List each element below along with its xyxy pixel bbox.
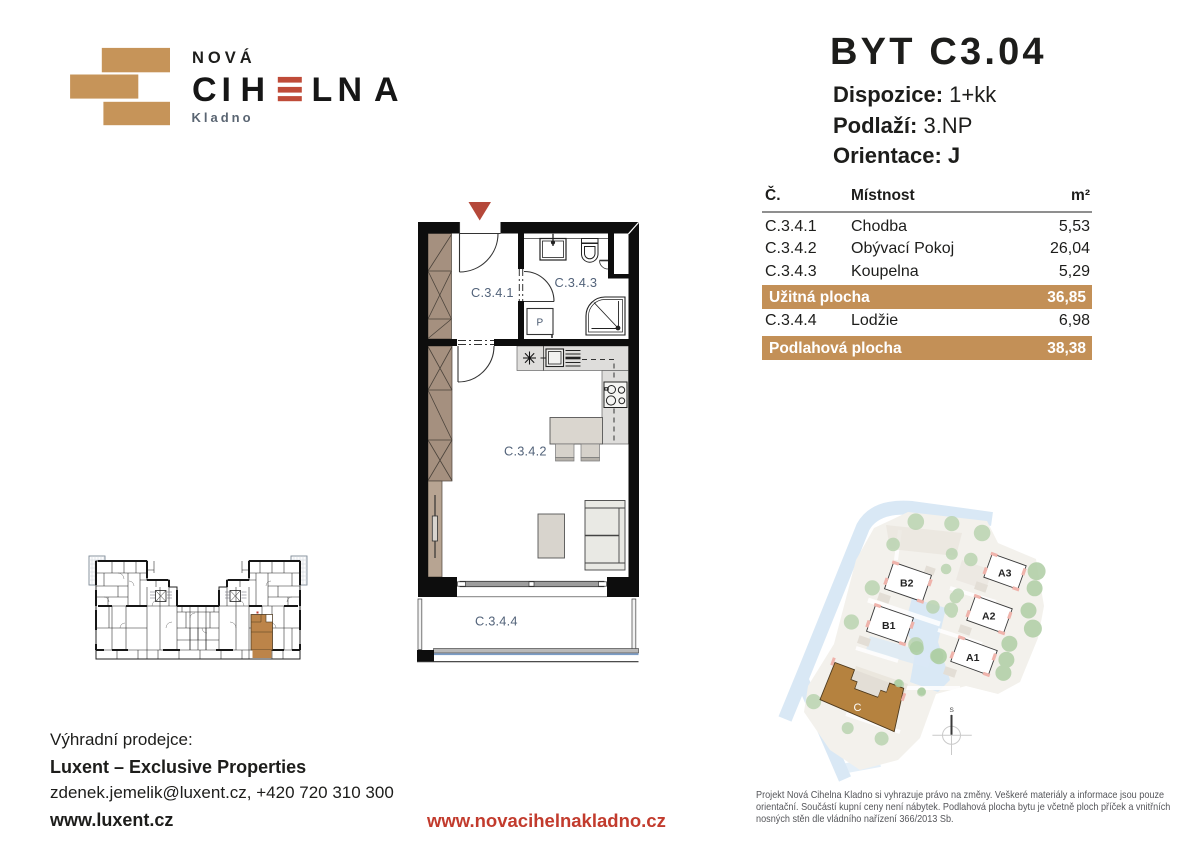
svg-text:N: N — [338, 71, 363, 109]
svg-text:B2: B2 — [900, 578, 914, 590]
svg-text:C.3.4.1: C.3.4.1 — [471, 285, 514, 300]
svg-text:C: C — [192, 71, 217, 109]
svg-text:L: L — [312, 71, 333, 109]
svg-text:C: C — [854, 702, 862, 714]
svg-text:C.3.4.2: C.3.4.2 — [504, 444, 547, 459]
svg-text:A: A — [374, 71, 399, 109]
svg-text:A3: A3 — [998, 568, 1012, 580]
svg-text:Kladno: Kladno — [192, 110, 254, 125]
svg-text:S: S — [950, 707, 955, 714]
svg-text:H: H — [241, 71, 266, 109]
svg-text:C.3.4.3: C.3.4.3 — [555, 275, 598, 290]
svg-text:B1: B1 — [882, 620, 896, 632]
svg-text:P: P — [537, 318, 544, 329]
svg-text:A2: A2 — [982, 611, 996, 623]
svg-text:C.3.4.4: C.3.4.4 — [475, 614, 518, 629]
svg-text:I: I — [222, 71, 231, 109]
svg-text:NOVÁ: NOVÁ — [192, 48, 256, 67]
svg-text:A1: A1 — [966, 652, 980, 664]
